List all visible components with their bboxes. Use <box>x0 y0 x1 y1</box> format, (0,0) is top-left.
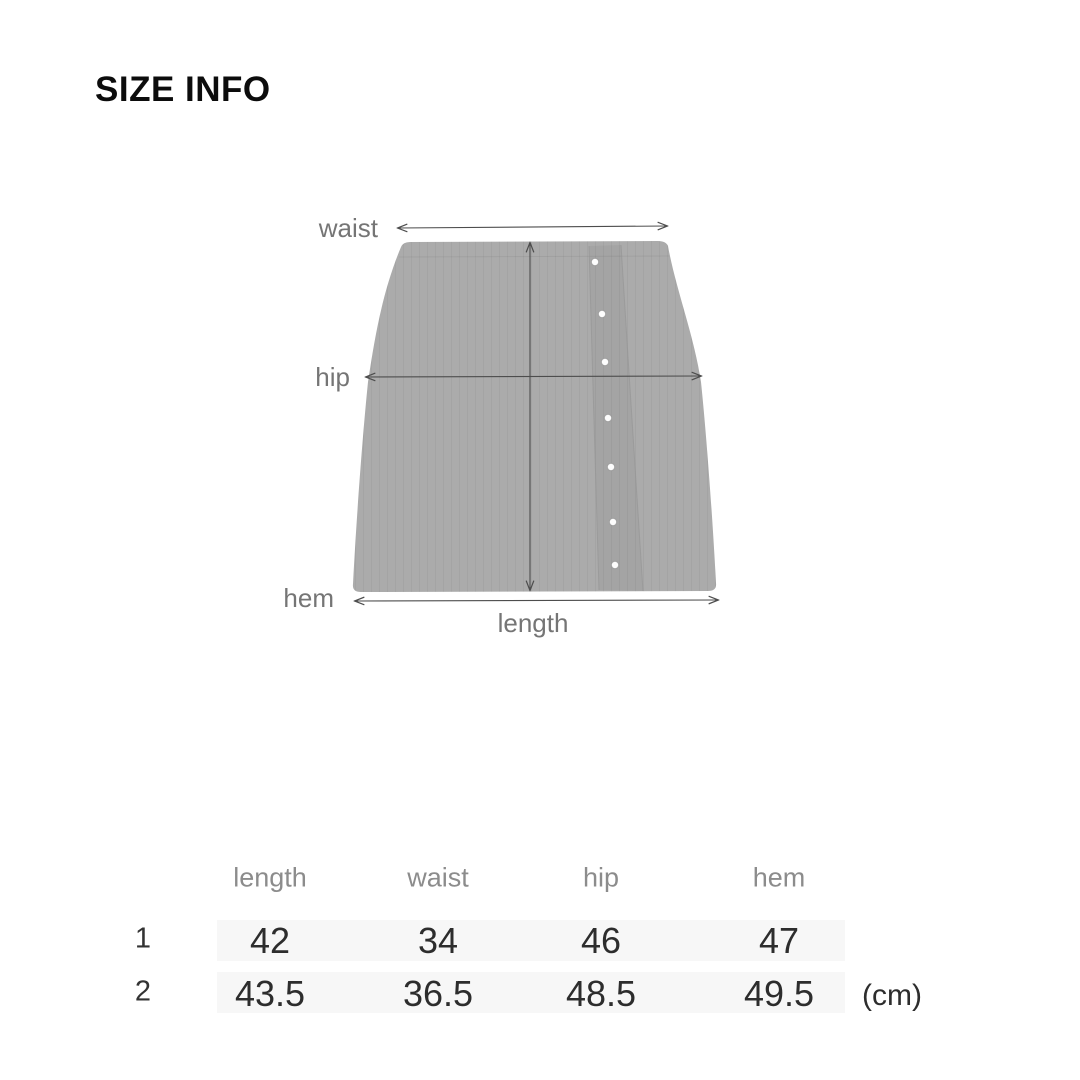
cell-size2-waist: 36.5 <box>403 976 473 1012</box>
row-label-1: 1 <box>135 925 151 954</box>
column-header-length: length <box>233 865 307 892</box>
unit-label: (cm) <box>862 981 922 1011</box>
cell-size1-hem: 47 <box>759 923 799 959</box>
cell-size2-hem: 49.5 <box>744 976 814 1012</box>
table-row-stripe <box>217 920 845 961</box>
cell-size1-hip: 46 <box>581 923 621 959</box>
cell-size2-hip: 48.5 <box>566 976 636 1012</box>
cell-size1-waist: 34 <box>418 923 458 959</box>
column-header-hip: hip <box>583 865 619 892</box>
size-table: length waist hip hem 1 42 34 46 47 2 43.… <box>0 0 1080 1080</box>
cell-size2-length: 43.5 <box>235 976 305 1012</box>
column-header-waist: waist <box>407 865 469 892</box>
row-label-2: 2 <box>135 978 151 1007</box>
cell-size1-length: 42 <box>250 923 290 959</box>
column-header-hem: hem <box>753 865 806 892</box>
